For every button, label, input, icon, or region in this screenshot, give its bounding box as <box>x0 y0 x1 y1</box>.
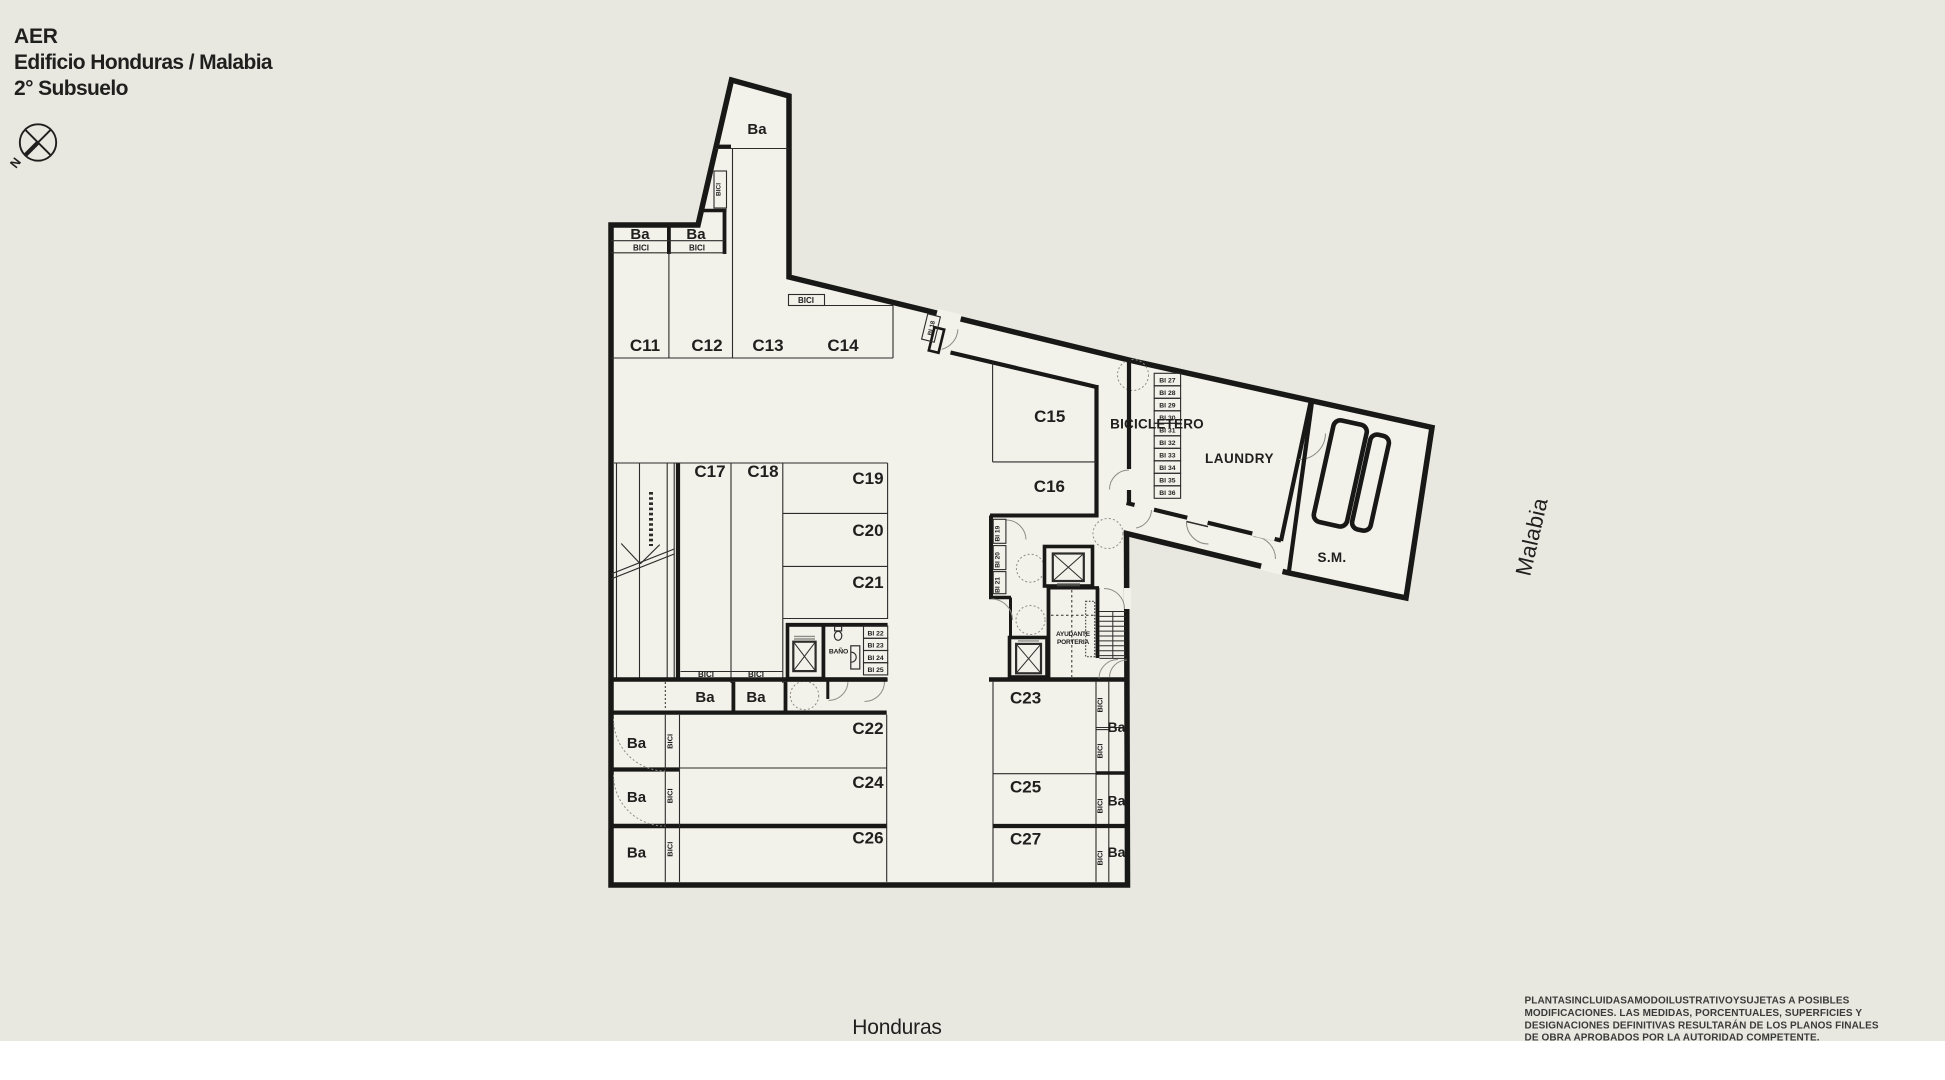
svg-text:BICI: BICI <box>1095 851 1104 866</box>
svg-text:Ba: Ba <box>1108 719 1126 735</box>
svg-text:AER: AER <box>14 25 58 48</box>
svg-text:BI 35: BI 35 <box>1159 478 1175 485</box>
svg-text:PORTERIA: PORTERIA <box>1057 639 1089 646</box>
svg-text:DESIGNACIONES DEFINITIVAS RESU: DESIGNACIONES DEFINITIVAS RESULTARÁN DE … <box>1525 1018 1879 1031</box>
svg-text:C16: C16 <box>1034 477 1065 496</box>
svg-text:BI 36: BI 36 <box>1159 490 1175 497</box>
svg-text:C19: C19 <box>852 469 883 488</box>
svg-text:BI 23: BI 23 <box>867 643 883 650</box>
svg-text:BICI: BICI <box>716 183 723 196</box>
svg-text:Ba: Ba <box>686 226 706 243</box>
svg-text:Ba: Ba <box>630 226 650 243</box>
svg-text:Ba: Ba <box>1108 793 1126 809</box>
svg-text:BI 27: BI 27 <box>1159 378 1175 385</box>
svg-text:C14: C14 <box>827 336 859 355</box>
svg-text:C11: C11 <box>630 336 660 355</box>
svg-text:Ba: Ba <box>627 735 647 752</box>
svg-text:C21: C21 <box>852 573 883 592</box>
svg-text:BI 20: BI 20 <box>995 552 1002 568</box>
svg-text:S.M.: S.M. <box>1318 550 1347 565</box>
svg-text:Ba: Ba <box>1108 844 1126 860</box>
svg-text:BICI: BICI <box>798 296 814 305</box>
svg-text:C18: C18 <box>747 462 778 481</box>
svg-text:Ba: Ba <box>627 789 647 806</box>
svg-text:BICICLETERO: BICICLETERO <box>1110 417 1204 432</box>
svg-text:BI 22: BI 22 <box>867 630 883 637</box>
svg-text:BI 33: BI 33 <box>1159 453 1175 460</box>
svg-text:Ba: Ba <box>695 689 715 706</box>
svg-text:BAÑO: BAÑO <box>829 647 848 656</box>
svg-text:BICI: BICI <box>1095 698 1104 713</box>
svg-text:BICI: BICI <box>1095 799 1104 814</box>
svg-text:BICI: BICI <box>1095 744 1104 759</box>
svg-text:C17: C17 <box>694 462 725 481</box>
svg-text:BI 21: BI 21 <box>995 577 1002 593</box>
svg-text:2° Subsuelo: 2° Subsuelo <box>14 77 128 100</box>
svg-text:C23: C23 <box>1010 689 1041 708</box>
svg-text:C20: C20 <box>852 521 883 540</box>
svg-text:BICI: BICI <box>665 788 674 803</box>
svg-text:BI 32: BI 32 <box>1159 440 1175 447</box>
svg-text:BI 19: BI 19 <box>995 525 1002 541</box>
svg-text:BICI: BICI <box>689 244 705 253</box>
svg-text:Ba: Ba <box>627 845 647 862</box>
svg-text:C27: C27 <box>1010 830 1041 849</box>
svg-text:BICI: BICI <box>665 734 674 749</box>
svg-text:Ba: Ba <box>747 121 767 138</box>
svg-text:MODIFICACIONES. LAS MEDIDAS, P: MODIFICACIONES. LAS MEDIDAS, PORCENTUALE… <box>1525 1008 1863 1019</box>
svg-text:BICI: BICI <box>665 842 674 857</box>
svg-text:C15: C15 <box>1034 407 1065 426</box>
svg-text:PLANTASINCLUIDASAMODOILUSTRATI: PLANTASINCLUIDASAMODOILUSTRATIVOYSUJETAS… <box>1525 996 1850 1007</box>
svg-text:LAUNDRY: LAUNDRY <box>1205 451 1274 466</box>
svg-text:C13: C13 <box>752 336 783 355</box>
svg-text:Edificio Honduras / Malabia: Edificio Honduras / Malabia <box>14 51 273 74</box>
svg-text:BI 24: BI 24 <box>867 655 883 662</box>
svg-text:BI 28: BI 28 <box>1159 390 1175 397</box>
svg-text:C12: C12 <box>691 336 722 355</box>
svg-text:C25: C25 <box>1010 778 1041 797</box>
svg-text:Ba: Ba <box>746 689 766 706</box>
svg-text:DE OBRA APROBADOS POR LA AUTOR: DE OBRA APROBADOS POR LA AUTORIDAD COMPE… <box>1525 1033 1820 1044</box>
svg-text:BI 29: BI 29 <box>1159 403 1175 410</box>
svg-text:BI 25: BI 25 <box>867 667 883 674</box>
svg-text:BICI: BICI <box>633 244 649 253</box>
svg-text:C22: C22 <box>852 719 883 738</box>
svg-text:BI 34: BI 34 <box>1159 465 1175 472</box>
svg-text:C26: C26 <box>852 829 883 848</box>
svg-text:Honduras: Honduras <box>852 1016 941 1039</box>
svg-text:C24: C24 <box>852 773 884 792</box>
